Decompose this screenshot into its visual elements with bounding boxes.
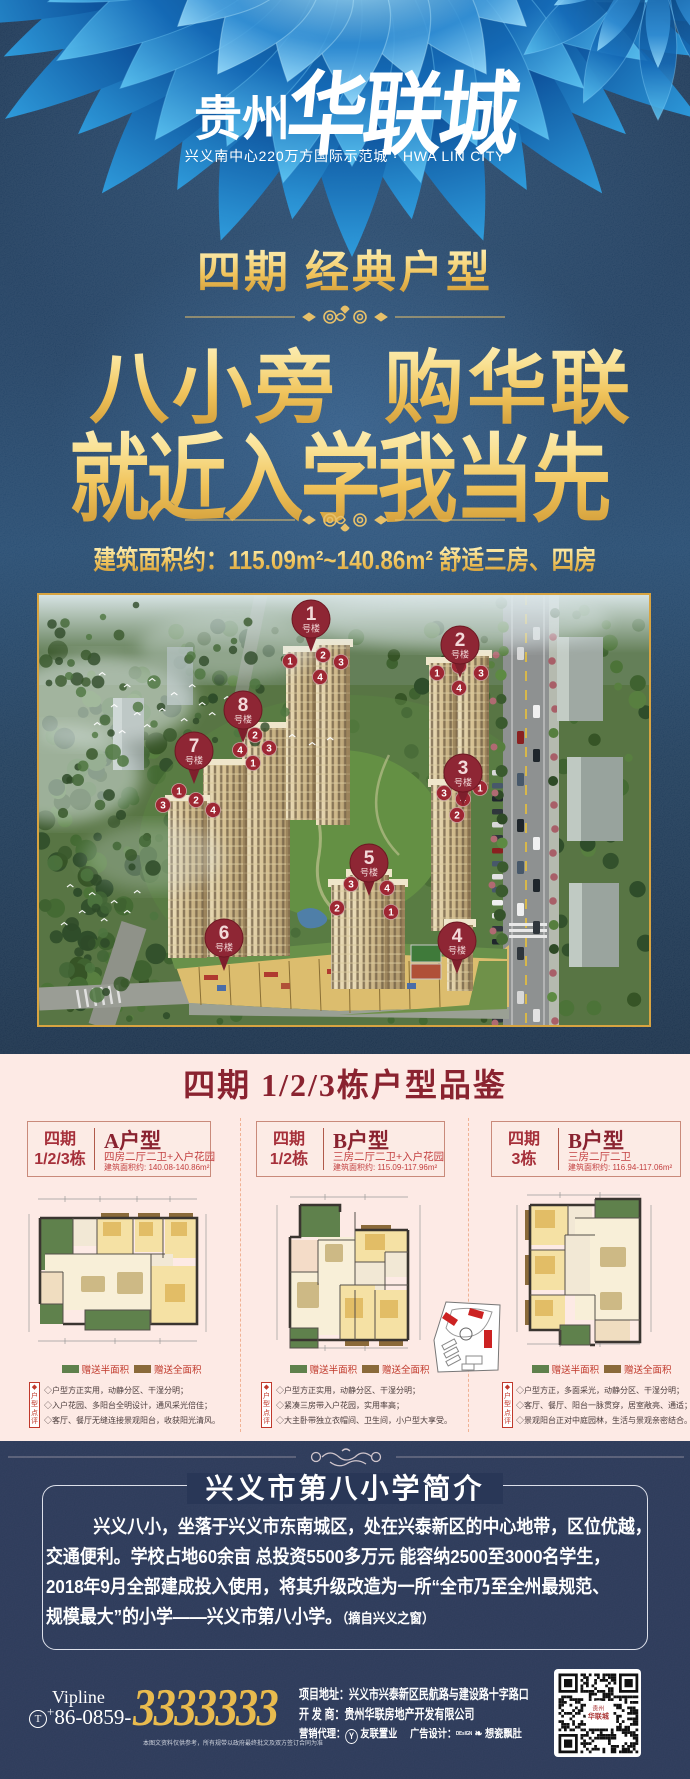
svg-text:4: 4 [456, 684, 462, 695]
svg-text:贵州: 贵州 [592, 1704, 604, 1712]
svg-text:4: 4 [210, 806, 216, 817]
svg-text:号楼: 号楼 [234, 714, 252, 725]
svg-text:8: 8 [238, 695, 249, 716]
svg-text:5: 5 [364, 848, 375, 869]
svg-text:1: 1 [176, 787, 182, 798]
svg-text:4: 4 [384, 884, 390, 895]
svg-text:7: 7 [189, 736, 200, 757]
svg-text:号楼: 号楼 [448, 945, 466, 956]
svg-text:2: 2 [320, 651, 326, 662]
svg-text:1: 1 [434, 669, 440, 680]
svg-text:3: 3 [441, 789, 447, 800]
svg-text:2: 2 [454, 811, 460, 822]
svg-text:4: 4 [452, 926, 463, 947]
svg-text:号楼: 号楼 [454, 777, 472, 788]
svg-text:1: 1 [250, 759, 256, 770]
svg-text:号楼: 号楼 [360, 867, 378, 878]
svg-text:3: 3 [160, 801, 166, 812]
svg-text:6: 6 [219, 923, 230, 944]
svg-text:4: 4 [237, 746, 243, 757]
svg-text:3: 3 [266, 744, 272, 755]
svg-text:1: 1 [388, 908, 394, 919]
svg-text:2: 2 [334, 904, 340, 915]
svg-text:华联城: 华联城 [588, 1711, 609, 1720]
svg-text:2: 2 [455, 630, 466, 651]
svg-text:3: 3 [338, 658, 344, 669]
svg-text:3: 3 [478, 669, 484, 680]
svg-text:1: 1 [287, 657, 293, 668]
svg-text:1: 1 [306, 604, 317, 625]
svg-text:2: 2 [193, 796, 199, 807]
svg-text:号楼: 号楼 [302, 623, 320, 634]
svg-text:号楼: 号楼 [215, 942, 233, 953]
svg-text:3: 3 [458, 758, 469, 779]
svg-text:4: 4 [317, 673, 323, 684]
svg-text:3: 3 [348, 880, 354, 891]
svg-text:号楼: 号楼 [185, 755, 203, 766]
svg-text:2: 2 [252, 731, 258, 742]
svg-text:号楼: 号楼 [451, 649, 469, 660]
